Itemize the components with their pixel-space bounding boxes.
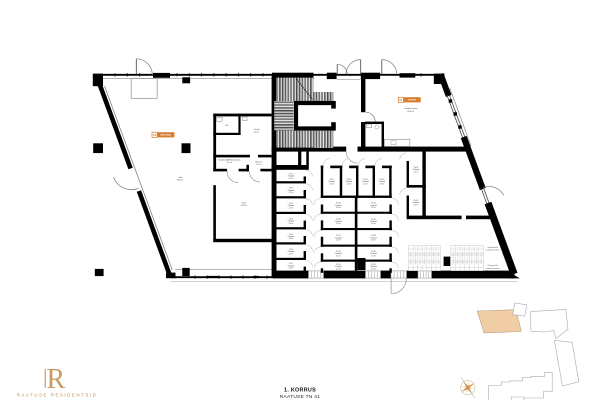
svg-text:02: 02: [153, 133, 157, 137]
svg-text:5: 5: [471, 247, 472, 249]
svg-text:2.2 m²: 2.2 m²: [289, 253, 294, 256]
svg-text:2.6 m²: 2.6 m²: [336, 206, 341, 209]
svg-text:01: 01: [399, 98, 403, 102]
svg-text:21.6 m²: 21.6 m²: [241, 204, 248, 207]
svg-text:3.1 m²: 3.1 m²: [414, 203, 419, 206]
svg-text:7: 7: [438, 247, 439, 249]
svg-text:2.0 m²: 2.0 m²: [380, 182, 385, 185]
svg-text:2.2 m²: 2.2 m²: [289, 206, 294, 209]
svg-text:2.2 m²: 2.2 m²: [289, 222, 294, 225]
svg-text:6: 6: [433, 247, 434, 249]
svg-text:2.6 m²: 2.6 m²: [336, 254, 341, 257]
svg-text:varikatusealune: varikatusealune: [486, 249, 501, 252]
svg-text:2: 2: [457, 247, 458, 249]
svg-text:29.4 m²: 29.4 m²: [407, 110, 414, 113]
svg-text:4: 4: [467, 247, 468, 249]
svg-text:1-toaline korter: 1-toaline korter: [404, 107, 418, 110]
svg-text:Garderoob/Ettevalmistus: Garderoob/Ettevalmistus: [218, 158, 240, 161]
svg-text:2.6 m²: 2.6 m²: [371, 239, 376, 242]
svg-text:KORTER: KORTER: [408, 99, 416, 101]
svg-text:2.5 m²: 2.5 m²: [254, 131, 260, 134]
svg-text:2.2 m²: 2.2 m²: [289, 177, 294, 180]
svg-text:MÜÜGISAAL: MÜÜGISAAL: [160, 133, 172, 136]
svg-text:2.6 m²: 2.6 m²: [371, 267, 376, 270]
svg-text:2.2 m²: 2.2 m²: [289, 191, 294, 194]
svg-text:2.1 m²: 2.1 m²: [256, 163, 262, 166]
svg-text:Saal: Saal: [178, 177, 183, 179]
svg-text:2.6 m²: 2.6 m²: [371, 206, 376, 209]
svg-text:6: 6: [476, 247, 477, 249]
svg-text:2.6 m²: 2.6 m²: [336, 267, 341, 270]
svg-text:2.6 m²: 2.6 m²: [336, 239, 341, 242]
svg-text:1. KORRUS: 1. KORRUS: [284, 388, 316, 394]
svg-text:2.6 m²: 2.6 m²: [371, 222, 376, 225]
svg-text:1: 1: [410, 247, 411, 249]
svg-text:R: R: [47, 364, 66, 395]
svg-text:2.2 m²: 2.2 m²: [289, 267, 294, 270]
svg-text:3.1 m²: 3.1 m²: [414, 170, 419, 173]
svg-text:RAATUSE RESIDENTSID: RAATUSE RESIDENTSID: [17, 392, 98, 397]
svg-text:Tualett: Tualett: [254, 128, 260, 131]
svg-text:86.5 m²: 86.5 m²: [177, 179, 184, 182]
svg-text:2: 2: [415, 247, 416, 249]
svg-text:2.2 m²: 2.2 m²: [289, 237, 294, 240]
svg-text:3: 3: [462, 247, 463, 249]
svg-text:varikatusealune: varikatusealune: [486, 267, 501, 270]
svg-text:4.5 m²: 4.5 m²: [227, 161, 233, 164]
svg-text:2.6 m²: 2.6 m²: [336, 222, 341, 225]
svg-text:5: 5: [429, 247, 430, 249]
svg-text:7: 7: [481, 247, 482, 249]
svg-text:2.0 m²: 2.0 m²: [329, 182, 334, 185]
svg-text:2.0 m²: 2.0 m²: [363, 182, 368, 185]
svg-text:Rattaparkla: Rattaparkla: [488, 246, 499, 249]
svg-text:3: 3: [419, 247, 420, 249]
svg-text:2.0 m²: 2.0 m²: [347, 182, 352, 185]
svg-text:Rattaparkla: Rattaparkla: [488, 264, 499, 267]
svg-text:1: 1: [453, 247, 454, 249]
svg-text:4: 4: [424, 247, 425, 249]
svg-text:2.6 m²: 2.6 m²: [371, 254, 376, 257]
svg-text:RAATUSE TN 41: RAATUSE TN 41: [280, 394, 321, 400]
